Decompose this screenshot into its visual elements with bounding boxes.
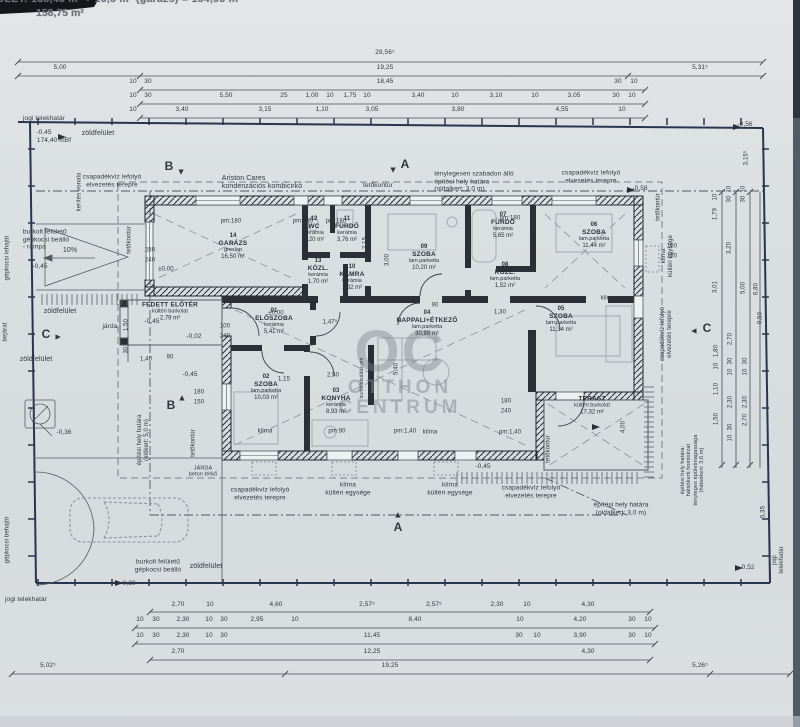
room-fl: kültéri burkolat xyxy=(574,403,610,409)
dim-chain-label: 10 xyxy=(129,106,136,114)
room-num: 04 xyxy=(396,310,457,317)
room-fl: kerámia xyxy=(304,231,324,237)
annotation-label: JÁRDA beton térkő xyxy=(189,466,218,479)
dim-label: 5,35 xyxy=(760,506,767,518)
annotation-label: -0,58 xyxy=(632,185,647,193)
dim-chain-label: 1,00 xyxy=(305,92,318,100)
room-nm: SZOBA xyxy=(409,251,439,258)
annotation-label: csapadékvíz lefolyó elvezetés terepre xyxy=(231,486,290,501)
dim-chain-label: 10 xyxy=(205,616,212,624)
dim-chain-label: 2,70 xyxy=(171,601,184,609)
room-ar: 10,20 m² xyxy=(409,265,439,272)
room-nm: KAMRA xyxy=(339,271,364,278)
room-label-szoba: 02SZOBAlam.parketta10,03 m² xyxy=(251,374,281,402)
dim-chain-label: 2,30 xyxy=(176,632,189,640)
dim-chain-label: 10 xyxy=(451,92,458,100)
dim-label: pm:180 xyxy=(293,218,314,225)
dim-chain-label: 2,30 xyxy=(176,616,189,624)
dim-label: pm:180 xyxy=(500,215,521,222)
annotation-label: építési hely határa (oldalkert: 3,0 m) xyxy=(593,501,648,516)
annotation-label: -0,36 xyxy=(56,429,71,437)
dim-chain-label: 10 xyxy=(644,632,651,640)
annotation-label: klíma xyxy=(601,295,616,302)
dim-chain-label: 5,02⁵ xyxy=(40,662,56,670)
annotation-label: jogi telekhatár xyxy=(5,596,47,604)
dim-chain-label: 2,70 xyxy=(171,648,184,656)
room-label-szoba: 09SZOBAlam.parketta10,20 m² xyxy=(409,244,439,272)
dim-label: 100 xyxy=(220,323,230,330)
dim-chain-label: 2,30 xyxy=(490,601,503,609)
room-nm: SZOBA xyxy=(251,381,281,388)
room-nm: KÖZL. xyxy=(308,265,329,272)
dim-label: 1,15 xyxy=(278,376,290,383)
dim-chain-label: 8,40 xyxy=(408,616,421,624)
dim-chain-label: 10 xyxy=(129,92,136,100)
dim-label: 1,30 xyxy=(494,309,506,316)
floor-plan-page: OC OTTHON CENTRUM ÉPÜLET: 138,45 m² + 16… xyxy=(0,0,800,727)
room-ar: 3,76 m² xyxy=(335,237,359,244)
dim-label: pm:1,40 xyxy=(499,429,521,436)
room-ar: 16,50 m² xyxy=(219,254,248,261)
dim-label: 6,80 xyxy=(753,283,760,295)
room-nm: KÖZL. xyxy=(490,269,520,276)
room-label-terasz: TERASZkültéri burkolat17,32 m² xyxy=(574,396,610,417)
dim-label: 1,47⁵ xyxy=(323,319,338,326)
dim-chain-label: 3,05 xyxy=(567,92,580,100)
room-fl: kerámia xyxy=(335,231,359,237)
annotation-label: bejárat xyxy=(2,322,9,341)
dim-label: 10 xyxy=(727,369,734,376)
annotation-label: -0,56 xyxy=(737,121,752,129)
dim-chain-label: 4,30 xyxy=(581,601,594,609)
dim-chain-label: 3,10 xyxy=(489,92,502,100)
dim-label: 5,40 xyxy=(393,363,400,375)
dim-label: 9,50 xyxy=(757,312,764,324)
dim-label: 3,15⁵ xyxy=(743,151,750,166)
annotation-label: klíma xyxy=(423,429,438,436)
dim-chain-label: 5,26⁵ xyxy=(692,662,708,670)
room-label-k-zl-: 13KÖZL.kerámia1,70 m² xyxy=(308,258,329,286)
dim-chain-label: 30 xyxy=(515,632,522,640)
dim-label: 2,15 xyxy=(362,237,369,249)
dim-label: 2,50 xyxy=(327,372,339,379)
annotation-label: C xyxy=(703,321,712,335)
dim-label: 3,00 xyxy=(384,254,391,266)
annotation-label: építési hely határa: hátsókerti homlokza… xyxy=(680,435,706,506)
dim-chain-label: 2,57⁵ xyxy=(426,601,442,609)
room-ar: 1,52 m² xyxy=(490,283,520,290)
annotation-label: zöldfelület xyxy=(44,308,77,316)
dim-chain-label: 3,80 xyxy=(451,106,464,114)
annotation-label: tetőkontúr xyxy=(363,182,393,190)
plan-labels: 14GARÁZSgreslap16,50 m²12WCkerámia1,20 m… xyxy=(0,0,800,727)
dim-chain-label: 30 xyxy=(628,632,635,640)
room-fl: lam.parketta xyxy=(409,259,439,265)
annotation-label: tetőkontúr xyxy=(190,429,197,457)
dim-chain-label: 4,60 xyxy=(269,601,282,609)
annotation-label: csapadékvíz lefolyó elvezetés terepre xyxy=(502,484,561,499)
annotation-label: ténylegesen szabadon álló építési hely h… xyxy=(434,171,513,194)
dim-label: 10 xyxy=(740,186,747,193)
annotation-label: tetőkontúr xyxy=(126,226,133,254)
dim-label: 90 xyxy=(432,302,439,309)
dim-label: ±0,00 xyxy=(268,310,283,317)
dim-label: 10 xyxy=(727,435,734,442)
annotation-label: -0,52 xyxy=(739,564,754,572)
dim-label: 240 xyxy=(220,333,230,340)
room-fl: lam.parketta xyxy=(546,321,576,327)
dim-label: 30 xyxy=(727,358,734,365)
annotation-label: 10% xyxy=(63,247,77,255)
room-nm: SZOBA xyxy=(579,229,609,236)
annotation-label: -0,45 xyxy=(32,263,47,271)
dim-chain-label: 10 xyxy=(533,632,540,640)
dim-label: 30 xyxy=(727,424,734,431)
dim-label: 30 xyxy=(740,196,747,203)
dim-chain-label: 10 xyxy=(531,92,538,100)
room-ar: 17,32 m² xyxy=(574,409,610,416)
dim-chain-label: 2,95 xyxy=(250,616,263,624)
annotation-label: -0,45 xyxy=(182,371,197,379)
annotation-label: gépkocsi lehajtó xyxy=(4,236,11,281)
room-ar: 1,70 m² xyxy=(308,279,329,286)
dim-chain-label: 30 xyxy=(144,92,151,100)
room-nm: SZOBA xyxy=(546,313,576,320)
annotation-label: ▲ xyxy=(393,510,402,521)
dim-chain-label: 10 xyxy=(136,616,143,624)
room-num: 09 xyxy=(409,244,439,251)
dim-label: 180 xyxy=(667,243,677,250)
dim-label: 30 xyxy=(742,358,749,365)
dim-chain-label: 19,25 xyxy=(377,64,394,72)
dim-chain-label: 1,10 xyxy=(315,106,328,114)
dim-label: 10 xyxy=(742,369,749,376)
dim-chain-label: 10 xyxy=(205,632,212,640)
dim-label: pm:90 xyxy=(328,428,345,435)
annotation-label: ▲ xyxy=(53,332,64,341)
dim-chain-label: 2,57⁵ xyxy=(359,601,375,609)
room-nm: FEDETT ELŐTÉR xyxy=(142,302,198,309)
annotation-label: burkolatváltás pm xyxy=(360,358,366,399)
dim-chain-label: 10 xyxy=(326,92,333,100)
dim-label: 180 xyxy=(194,389,204,396)
room-ar: 1,32 m² xyxy=(339,285,364,292)
dim-label: 240 xyxy=(145,257,155,264)
annotation-label: építési hely határa (előkert: 5,0 m) xyxy=(137,415,151,466)
dim-label: 10 xyxy=(726,186,733,193)
dim-label: 1,50 xyxy=(713,413,720,425)
annotation-label: Ariston Cares kondenzációs kombicirkó xyxy=(222,175,303,192)
room-ar: 5,65 m² xyxy=(491,233,515,240)
room-fl: lam.parketta xyxy=(490,277,520,283)
room-ar: 11,34 m² xyxy=(546,327,576,334)
dim-chain-label: 29,56⁵ xyxy=(375,49,395,57)
dim-label: 2,70 xyxy=(727,333,734,345)
annotation-label: 174,40 mBf xyxy=(37,137,71,145)
dim-label: pm:180 xyxy=(221,218,242,225)
dim-chain-label: 10 xyxy=(630,78,637,86)
annotation-label: tetőkontúr xyxy=(545,435,552,463)
room-label-kamra: 10KAMRAkerámia1,32 m² xyxy=(339,264,364,292)
dim-chain-label: 10 xyxy=(523,601,530,609)
dim-chain-label: 5,31⁵ xyxy=(692,64,708,72)
room-label-konyha: 03KONYHAkerámia8,93 m² xyxy=(321,388,350,416)
room-label-szoba: 06SZOBAlam.parketta11,44 m² xyxy=(579,222,609,250)
dim-label: 10 xyxy=(713,363,720,370)
room-ar: 11,44 m² xyxy=(579,243,609,250)
annotation-label: gépkocsi behajtó xyxy=(4,517,11,564)
room-ar: 5,41 m² xyxy=(255,329,293,336)
annotation-label: ▲ xyxy=(388,165,397,176)
dim-chain-label: 19,25 xyxy=(382,662,399,670)
dim-label: 5,00 xyxy=(740,282,747,294)
annotation-label: jogi telekhatár xyxy=(23,115,65,123)
annotation-label: -0,45 xyxy=(144,318,159,326)
dim-chain-label: 10 xyxy=(136,632,143,640)
dim-label: 1,80 xyxy=(713,345,720,357)
room-num: 13 xyxy=(308,258,329,265)
dim-chain-label: 18,45 xyxy=(377,78,394,86)
room-num: 10 xyxy=(339,264,364,271)
dim-chain-label: 10 xyxy=(206,601,213,609)
room-label-nappali-tkez-: 04NAPPALI+ÉTKEZŐlam.parketta30,88 m² xyxy=(396,310,457,338)
room-label-gar-zs: 14GARÁZSgreslap16,50 m² xyxy=(219,233,248,261)
dim-label: 1,50 xyxy=(123,319,130,331)
annotation-label: jogi telekhatár xyxy=(772,546,786,573)
room-fl: lam.parketta xyxy=(579,237,609,243)
annotation-label: ▲ xyxy=(177,393,186,404)
room-fl: kerámia xyxy=(308,273,329,279)
dim-label: 150 xyxy=(194,399,204,406)
room-num: 06 xyxy=(579,222,609,229)
annotation-label: járda xyxy=(103,323,118,331)
dim-chain-label: 30 xyxy=(614,78,621,86)
annotation-label: C xyxy=(42,327,51,341)
room-num: 02 xyxy=(251,374,281,381)
dim-chain-label: 12,25 xyxy=(364,648,381,656)
dim-chain-label: 30 xyxy=(612,92,619,100)
room-num: 05 xyxy=(546,306,576,313)
dim-label: 1,10 xyxy=(713,383,720,395)
room-nm: TERASZ xyxy=(574,396,610,403)
annotation-label: klíma kültéri egysége xyxy=(325,481,370,496)
annotation-label: burkolt felületű gépkocsi beálló xyxy=(135,558,181,573)
dim-label: 240 xyxy=(501,408,511,415)
dim-chain-label: 30 xyxy=(152,616,159,624)
dim-label: 2,70 xyxy=(742,414,749,426)
dim-label: 4,00 xyxy=(620,421,627,433)
dim-chain-label: 11,45 xyxy=(364,632,380,640)
dim-label: 2,30 xyxy=(727,396,734,408)
room-num: 08 xyxy=(490,262,520,269)
room-label-k-zl-: 08KÖZL.lam.parketta1,52 m² xyxy=(490,262,520,290)
dim-chain-label: 30 xyxy=(220,632,227,640)
annotation-label: ▲ xyxy=(176,167,185,178)
dim-chain-label: 5,00 xyxy=(53,64,66,72)
room-fl: kerámia xyxy=(491,227,515,233)
annotation-label: kerítés vonala xyxy=(76,173,83,212)
dim-chain-label: 1,75 xyxy=(343,92,356,100)
dim-chain-label: 10 xyxy=(628,92,635,100)
dim-chain-label: 30 xyxy=(628,616,635,624)
dim-chain-label: 3,90 xyxy=(573,632,586,640)
annotation-label: ▲ xyxy=(689,326,700,335)
annotation-label: -0,02 xyxy=(186,333,201,341)
dim-chain-label: 10 xyxy=(291,616,298,624)
dim-label: 2,30 xyxy=(742,396,749,408)
dim-label: 3,01 xyxy=(712,281,719,293)
annotation-label: -0,30 xyxy=(120,580,135,588)
dim-chain-label: 3,40 xyxy=(411,92,424,100)
room-label-szoba: 05SZOBAlam.parketta11,34 m² xyxy=(546,306,576,334)
dim-chain-label: 10 xyxy=(644,616,651,624)
room-nm: NAPPALI+ÉTKEZŐ xyxy=(396,317,457,324)
dim-chain-label: 30 xyxy=(152,632,159,640)
room-fl: lam.parketta xyxy=(251,389,281,395)
annotation-label: csapadékvíz lefolyó elvezetés terepre xyxy=(660,307,674,361)
dim-chain-label: 10 xyxy=(516,616,523,624)
room-ar: 8,93 m² xyxy=(321,409,350,416)
dim-chain-label: 30 xyxy=(144,78,151,86)
dim-chain-label: 3,40 xyxy=(175,106,188,114)
dim-label: 30 xyxy=(123,347,130,354)
room-nm: GARÁZS xyxy=(219,240,248,247)
dim-chain-label: 10 xyxy=(129,78,136,86)
room-ar: 10,03 m² xyxy=(251,395,281,402)
annotation-label: zöldfelület xyxy=(190,563,223,571)
annotation-label: -0,45 xyxy=(475,463,490,471)
dim-label: 90 xyxy=(167,354,174,361)
annotation-label: zöldfelület xyxy=(20,356,53,364)
room-ar: 1,20 m² xyxy=(304,237,324,244)
dim-chain-label: 4,20 xyxy=(573,616,586,624)
annotation-label: A xyxy=(394,520,403,534)
dim-label: 180 xyxy=(501,398,511,405)
dim-label: 1,79 xyxy=(712,208,719,220)
annotation-label: klíma xyxy=(258,428,273,435)
dim-chain-label: 25 xyxy=(280,92,287,100)
dim-chain-label: 4,55 xyxy=(555,106,568,114)
dim-chain-label: 5,50 xyxy=(219,92,232,100)
annotation-label: klíma kültéri egysége xyxy=(427,481,472,496)
dim-chain-label: 10 xyxy=(363,92,370,100)
dim-label: 280 xyxy=(145,247,155,254)
room-ar: 30,88 m² xyxy=(396,331,457,338)
annotation-label: B xyxy=(167,398,176,412)
dim-label: 10 xyxy=(712,194,719,201)
annotation-label: -0,45 xyxy=(36,129,51,137)
annotation-label: zöldfelület xyxy=(82,130,115,138)
dim-chain-label: 10 xyxy=(618,106,625,114)
room-num: 14 xyxy=(219,233,248,240)
dim-label: pm:1,40 xyxy=(394,428,416,435)
room-fl: kerámia xyxy=(339,279,364,285)
room-num: 03 xyxy=(321,388,350,395)
dim-chain-label: 3,05 xyxy=(365,106,378,114)
annotation-label: B xyxy=(165,159,174,173)
annotation-label: tetőkontúr xyxy=(655,193,662,221)
dim-label: 150 xyxy=(667,253,677,260)
room-nm: KONYHA xyxy=(321,395,350,402)
annotation-label: csapadékvíz lefolyó elvezetés terepre xyxy=(83,173,142,188)
dim-label: 1,40 xyxy=(140,356,152,363)
dim-chain-label: 3,15 xyxy=(258,106,271,114)
annotation-label: csapadékvíz lefolyó elvezetés terepre xyxy=(562,169,621,184)
dim-label: ±0,00 xyxy=(158,266,173,273)
dim-label: pm:180 xyxy=(326,218,347,225)
dim-label: 3,20 xyxy=(726,242,733,254)
dim-chain-label: 30 xyxy=(220,616,227,624)
dim-chain-label: 4,30 xyxy=(581,648,594,656)
dim-label: 30 xyxy=(726,196,733,203)
annotation-label: A xyxy=(401,157,410,171)
